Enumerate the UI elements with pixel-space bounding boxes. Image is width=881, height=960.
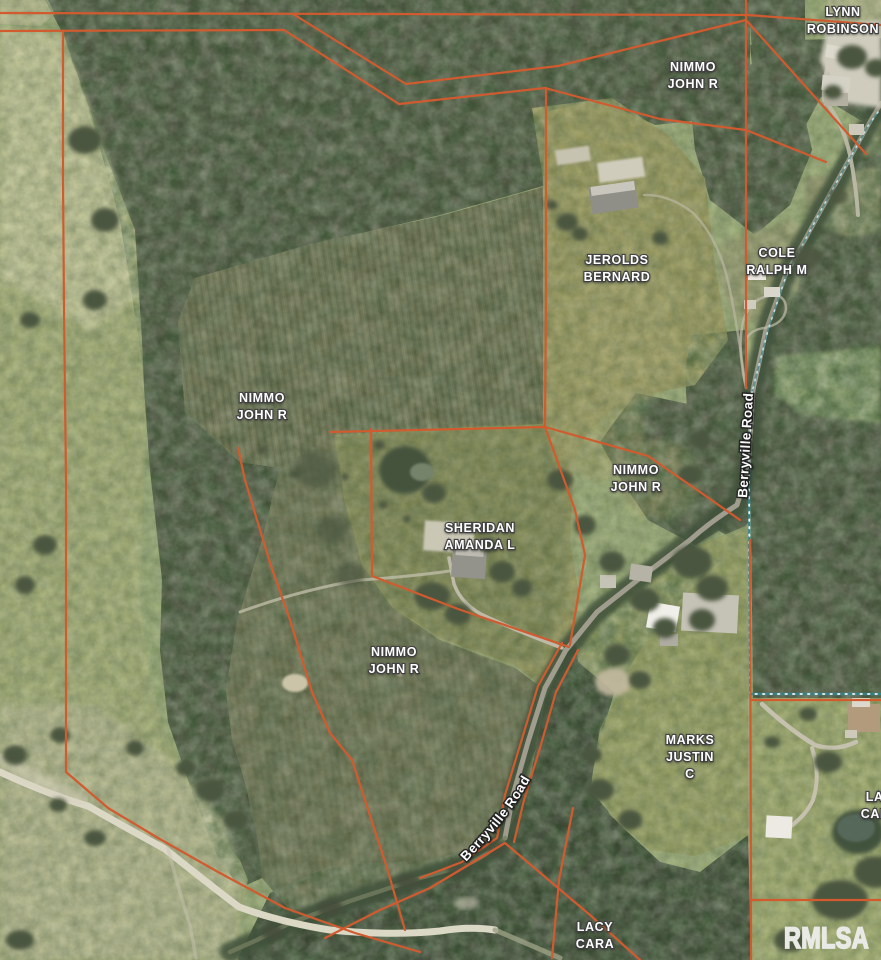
svg-text:JOHN R: JOHN R xyxy=(237,408,288,422)
svg-text:BERNARD: BERNARD xyxy=(584,270,651,284)
svg-text:NIMMO: NIMMO xyxy=(613,463,659,477)
svg-text:JUSTIN: JUSTIN xyxy=(666,750,714,764)
svg-text:NIMMO: NIMMO xyxy=(371,645,417,659)
svg-text:LACY: LACY xyxy=(577,920,613,934)
svg-text:JEROLDS: JEROLDS xyxy=(585,253,648,267)
svg-text:CARA: CARA xyxy=(861,807,881,821)
svg-text:AMANDA L: AMANDA L xyxy=(445,538,516,552)
svg-text:JOHN R: JOHN R xyxy=(611,480,662,494)
svg-text:CARA: CARA xyxy=(576,937,615,951)
svg-text:COLE: COLE xyxy=(758,246,795,260)
svg-text:RALPH M: RALPH M xyxy=(746,263,807,277)
svg-text:ROBINSON: ROBINSON xyxy=(807,22,879,36)
svg-text:MARKS: MARKS xyxy=(666,733,715,747)
svg-text:C: C xyxy=(685,767,695,781)
svg-text:LYNN: LYNN xyxy=(825,5,860,19)
svg-text:JOHN R: JOHN R xyxy=(668,77,719,91)
svg-text:NIMMO: NIMMO xyxy=(670,60,716,74)
svg-text:RMLSA: RMLSA xyxy=(784,922,869,955)
svg-text:JOHN R: JOHN R xyxy=(369,662,420,676)
svg-text:NIMMO: NIMMO xyxy=(239,391,285,405)
svg-text:SHERIDAN: SHERIDAN xyxy=(445,521,515,535)
svg-text:LACY: LACY xyxy=(866,790,881,804)
